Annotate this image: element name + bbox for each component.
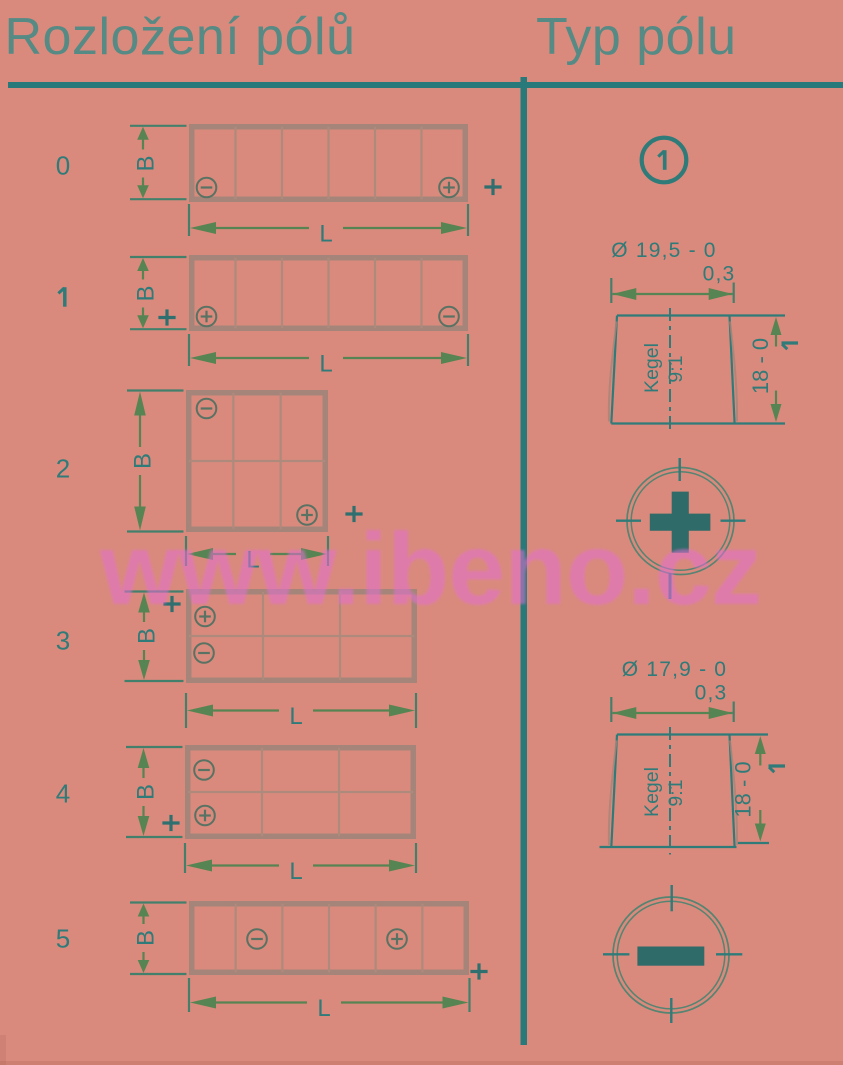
svg-text:L: L <box>317 995 330 1022</box>
svg-text:B: B <box>133 930 160 946</box>
svg-text:5: 5 <box>56 924 70 954</box>
svg-text:Typ pólu: Typ pólu <box>536 8 737 66</box>
svg-text:18 - 0: 18 - 0 <box>748 338 773 394</box>
svg-text:9:1: 9:1 <box>665 779 687 806</box>
svg-text:B: B <box>130 453 157 469</box>
svg-text:9:1: 9:1 <box>665 355 687 382</box>
svg-text:Rozložení pólů: Rozložení pólů <box>5 8 356 66</box>
svg-text:2: 2 <box>56 454 70 484</box>
svg-text:L: L <box>319 351 332 378</box>
svg-text:L: L <box>289 858 302 885</box>
svg-text:Ø 19,5 - 0: Ø 19,5 - 0 <box>611 239 716 262</box>
svg-text:B: B <box>134 628 161 644</box>
svg-text:B: B <box>133 155 160 171</box>
svg-text:0,3: 0,3 <box>703 263 736 286</box>
svg-text:B: B <box>133 285 160 301</box>
svg-text:4: 4 <box>56 779 70 809</box>
svg-text:Kegel: Kegel <box>641 767 663 817</box>
svg-text:L: L <box>289 703 302 730</box>
svg-text:B: B <box>133 784 160 800</box>
svg-text:Ø 17,9 - 0: Ø 17,9 - 0 <box>622 658 727 681</box>
svg-text:www.ibeno.cz: www.ibeno.cz <box>99 512 761 626</box>
svg-text:0: 0 <box>56 151 70 181</box>
svg-text:L: L <box>319 221 332 248</box>
svg-text:18 - 0: 18 - 0 <box>731 761 756 817</box>
svg-text:3: 3 <box>56 626 70 656</box>
svg-text:Kegel: Kegel <box>641 343 663 393</box>
svg-text:0,3: 0,3 <box>695 682 728 705</box>
